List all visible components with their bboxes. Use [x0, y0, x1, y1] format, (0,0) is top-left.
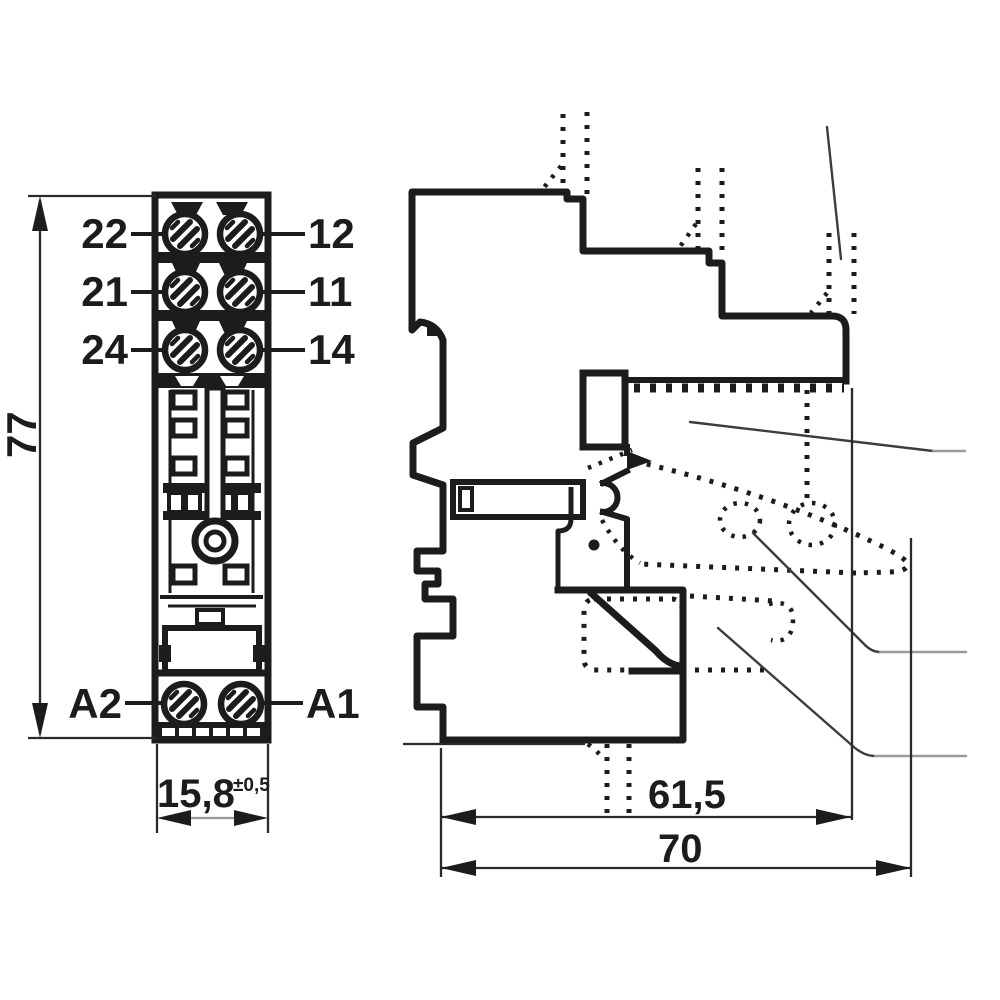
height-dimension: 77 [0, 196, 156, 738]
lower-body [443, 590, 683, 740]
marker-bar [453, 482, 583, 517]
relay-window [165, 628, 259, 672]
front-view: 22 21 24 12 11 14 A2 A1 77 15,8 ±0,5 [0, 195, 360, 833]
terminal-label-24: 24 [81, 326, 128, 373]
terminal-label-22: 22 [81, 210, 128, 257]
width-tolerance-label: ±0,5 [233, 775, 270, 796]
screw-A2 [164, 684, 204, 724]
keyhole-stem [207, 388, 223, 524]
width-dimension: 15,8 ±0,5 [157, 744, 270, 833]
depth-dimension-socket-label: 61,5 [648, 773, 726, 817]
depth-dimensions: 61,5 70 [403, 388, 911, 877]
clip-slot [583, 373, 625, 447]
depth-dimension-overall-label: 70 [658, 827, 703, 871]
coil-label-A2: A2 [68, 680, 122, 727]
callout-leader-lines [690, 127, 966, 756]
screw-21 [165, 272, 205, 312]
side-view: 61,5 70 [403, 112, 966, 877]
screw-A1 [221, 684, 261, 724]
clip-pivot-detail [558, 447, 652, 590]
screw-14 [220, 330, 260, 370]
screw-11 [220, 272, 260, 312]
height-dimension-label: 77 [0, 411, 45, 458]
terminal-label-14: 14 [308, 326, 355, 373]
terminal-label-12: 12 [308, 210, 355, 257]
serrated-edge [630, 380, 846, 388]
width-dimension-label: 15,8 [157, 772, 235, 816]
coil-label-A1: A1 [306, 680, 360, 727]
technical-drawing-page: 22 21 24 12 11 14 A2 A1 77 15,8 ±0,5 [0, 0, 1000, 1000]
terminal-label-21: 21 [81, 268, 128, 315]
screw-22 [165, 214, 205, 254]
bottom-band [155, 722, 268, 740]
screw-24 [165, 330, 205, 370]
screw-12 [220, 214, 260, 254]
relay-socket-dimension-drawing: 22 21 24 12 11 14 A2 A1 77 15,8 ±0,5 [0, 0, 1000, 1000]
terminal-label-11: 11 [308, 268, 352, 315]
